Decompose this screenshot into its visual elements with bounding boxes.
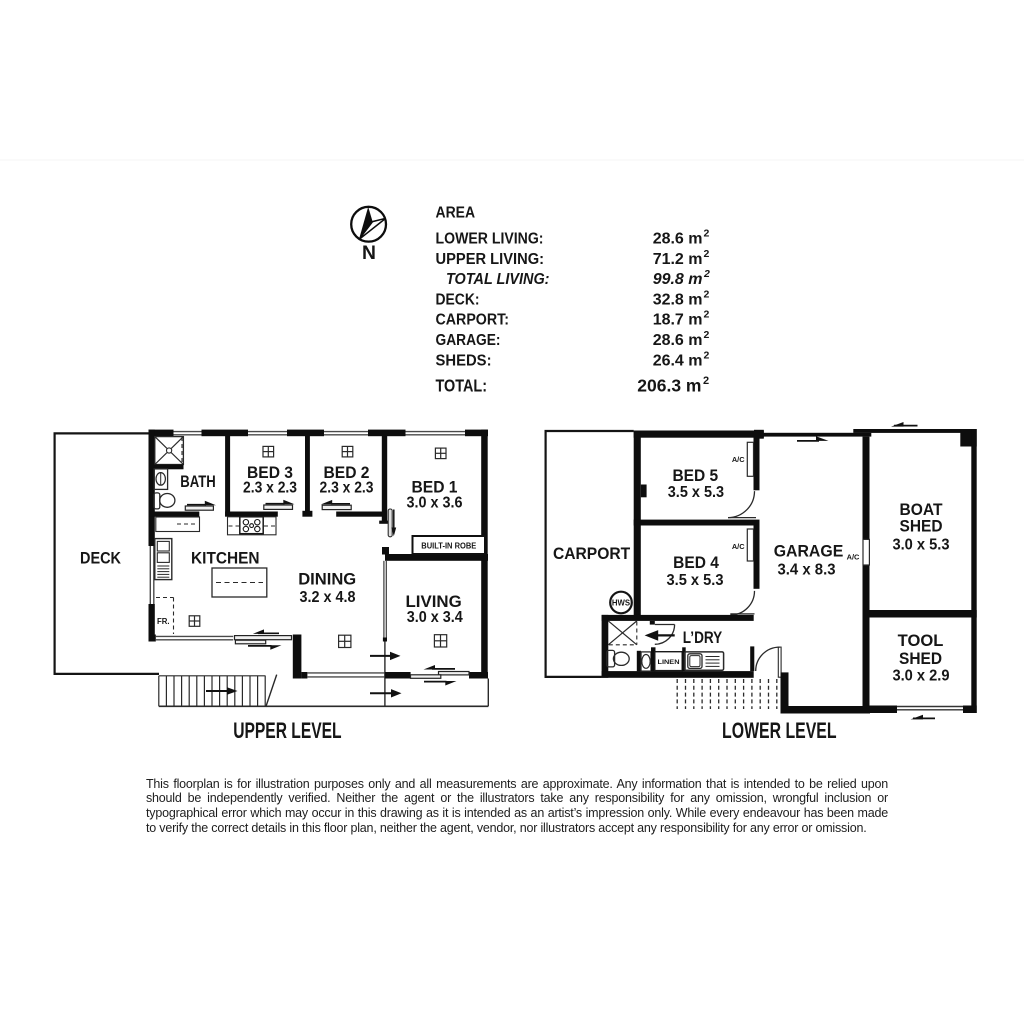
- svg-text:HWS: HWS: [612, 599, 630, 608]
- svg-text:2: 2: [704, 288, 710, 300]
- svg-text:206.3 m: 206.3 m: [637, 376, 701, 396]
- svg-text:LOWER LIVING:: LOWER LIVING:: [436, 231, 544, 248]
- svg-text:26.4 m: 26.4 m: [653, 352, 703, 369]
- svg-text:L’DRY: L’DRY: [683, 628, 723, 647]
- svg-text:KITCHEN: KITCHEN: [191, 548, 260, 567]
- svg-text:UPPER LEVEL: UPPER LEVEL: [233, 718, 341, 743]
- svg-text:28.6 m: 28.6 m: [653, 332, 703, 349]
- svg-text:3.5 x 5.3: 3.5 x 5.3: [668, 484, 725, 501]
- svg-text:CARPORT:: CARPORT:: [436, 312, 510, 329]
- svg-text:2.3 x 2.3: 2.3 x 2.3: [320, 479, 374, 496]
- svg-text:SHED: SHED: [900, 517, 943, 536]
- svg-text:DECK: DECK: [80, 548, 122, 567]
- svg-text:BED 4: BED 4: [673, 553, 719, 572]
- svg-text:A/C: A/C: [732, 542, 745, 551]
- svg-text:AREA: AREA: [436, 205, 476, 222]
- svg-text:BED 5: BED 5: [672, 466, 718, 485]
- svg-text:SHEDS:: SHEDS:: [436, 352, 492, 369]
- svg-text:UPPER LIVING:: UPPER LIVING:: [436, 251, 545, 268]
- svg-text:32.8 m: 32.8 m: [653, 291, 703, 308]
- svg-text:99.8 m: 99.8 m: [653, 271, 703, 288]
- svg-text:SHED: SHED: [899, 649, 942, 668]
- svg-text:2: 2: [703, 268, 710, 280]
- svg-text:LOWER LEVEL: LOWER LEVEL: [722, 718, 837, 743]
- svg-text:3.5 x 5.3: 3.5 x 5.3: [667, 572, 724, 589]
- svg-text:2: 2: [704, 248, 710, 260]
- svg-text:A/C: A/C: [847, 553, 860, 562]
- svg-text:2: 2: [704, 329, 710, 341]
- svg-text:3.2 x 4.8: 3.2 x 4.8: [300, 589, 356, 606]
- svg-text:2: 2: [704, 309, 710, 321]
- svg-text:BATH: BATH: [180, 472, 216, 491]
- svg-text:CARPORT: CARPORT: [553, 544, 631, 563]
- svg-text:3.0 x 3.4: 3.0 x 3.4: [407, 609, 463, 626]
- svg-text:LINEN: LINEN: [658, 659, 680, 666]
- svg-text:TOTAL LIVING:: TOTAL LIVING:: [446, 271, 550, 288]
- svg-text:3.4 x 8.3: 3.4 x 8.3: [778, 561, 836, 578]
- svg-text:N: N: [362, 243, 376, 264]
- svg-text:2: 2: [704, 349, 710, 361]
- svg-text:3.0 x 5.3: 3.0 x 5.3: [892, 536, 949, 553]
- svg-text:BUILT-IN ROBE: BUILT-IN ROBE: [421, 541, 476, 551]
- svg-text:TOOL: TOOL: [898, 631, 944, 650]
- svg-text:TOTAL:: TOTAL:: [436, 376, 488, 396]
- svg-text:LIVING: LIVING: [406, 592, 462, 611]
- svg-text:GARAGE:: GARAGE:: [436, 332, 501, 349]
- svg-text:3.0 x 3.6: 3.0 x 3.6: [407, 494, 463, 511]
- svg-text:DECK:: DECK:: [436, 291, 480, 308]
- svg-text:18.7 m: 18.7 m: [653, 312, 703, 329]
- svg-text:2.3 x 2.3: 2.3 x 2.3: [243, 479, 297, 496]
- svg-text:GARAGE: GARAGE: [774, 541, 844, 560]
- svg-text:DINING: DINING: [298, 569, 356, 588]
- svg-text:2: 2: [704, 228, 710, 240]
- svg-text:2: 2: [703, 375, 709, 387]
- svg-text:FR.: FR.: [157, 617, 170, 626]
- svg-text:3.0 x 2.9: 3.0 x 2.9: [892, 667, 949, 684]
- svg-text:28.6 m: 28.6 m: [653, 231, 703, 248]
- svg-text:71.2 m: 71.2 m: [653, 251, 703, 268]
- svg-text:A/C: A/C: [732, 455, 745, 464]
